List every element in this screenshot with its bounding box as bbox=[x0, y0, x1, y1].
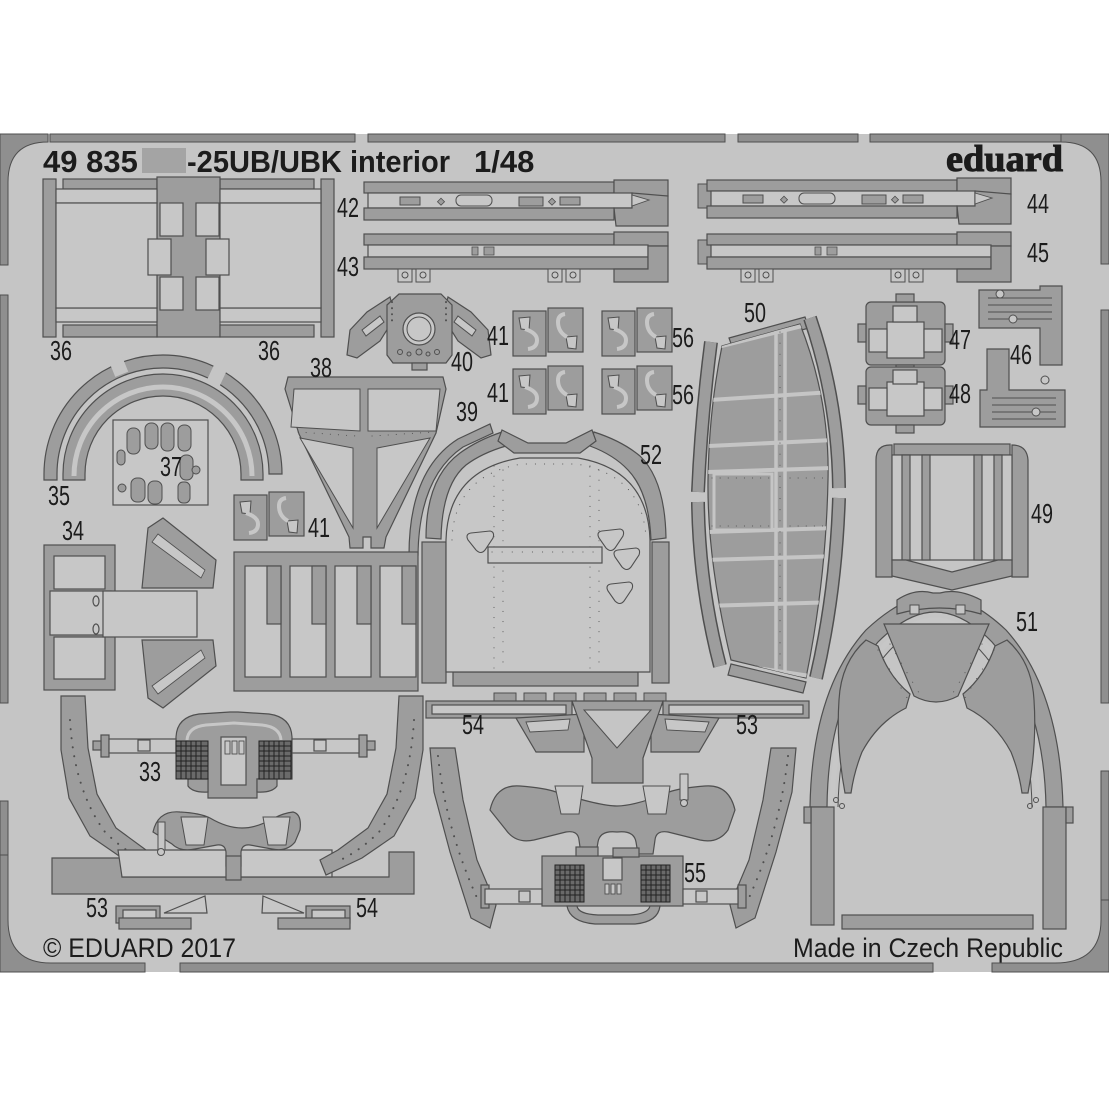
svg-text:35: 35 bbox=[48, 480, 70, 511]
svg-text:41: 41 bbox=[487, 320, 509, 351]
svg-text:37: 37 bbox=[160, 451, 182, 482]
svg-text:36: 36 bbox=[50, 335, 72, 366]
svg-text:45: 45 bbox=[1027, 237, 1049, 268]
svg-text:46: 46 bbox=[1010, 339, 1032, 370]
svg-text:42: 42 bbox=[337, 192, 359, 223]
svg-text:50: 50 bbox=[744, 297, 766, 328]
svg-text:48: 48 bbox=[949, 378, 971, 409]
svg-text:40: 40 bbox=[451, 346, 473, 377]
svg-text:-25UB/UBK interior: -25UB/UBK interior bbox=[187, 144, 450, 179]
svg-text:47: 47 bbox=[949, 324, 971, 355]
svg-text:49: 49 bbox=[1031, 498, 1053, 529]
svg-text:© EDUARD 2017: © EDUARD 2017 bbox=[43, 933, 236, 963]
svg-text:43: 43 bbox=[337, 251, 359, 282]
svg-text:53: 53 bbox=[736, 709, 758, 740]
svg-text:55: 55 bbox=[684, 857, 706, 888]
svg-text:1/48: 1/48 bbox=[474, 144, 534, 179]
svg-text:54: 54 bbox=[356, 892, 378, 923]
svg-text:56: 56 bbox=[672, 322, 694, 353]
svg-text:49 835: 49 835 bbox=[43, 144, 138, 179]
svg-text:54: 54 bbox=[462, 709, 484, 740]
svg-text:51: 51 bbox=[1016, 606, 1038, 637]
svg-text:Made in Czech Republic: Made in Czech Republic bbox=[793, 933, 1063, 963]
svg-text:39: 39 bbox=[456, 396, 478, 427]
svg-text:52: 52 bbox=[640, 439, 662, 470]
svg-text:38: 38 bbox=[310, 352, 332, 383]
svg-text:41: 41 bbox=[308, 512, 330, 543]
svg-text:41: 41 bbox=[487, 377, 509, 408]
svg-text:33: 33 bbox=[139, 756, 161, 787]
svg-text:56: 56 bbox=[672, 379, 694, 410]
svg-text:36: 36 bbox=[258, 335, 280, 366]
svg-text:53: 53 bbox=[86, 892, 108, 923]
svg-text:44: 44 bbox=[1027, 188, 1049, 219]
svg-text:eduard: eduard bbox=[946, 139, 1063, 180]
svg-text:34: 34 bbox=[62, 515, 84, 546]
